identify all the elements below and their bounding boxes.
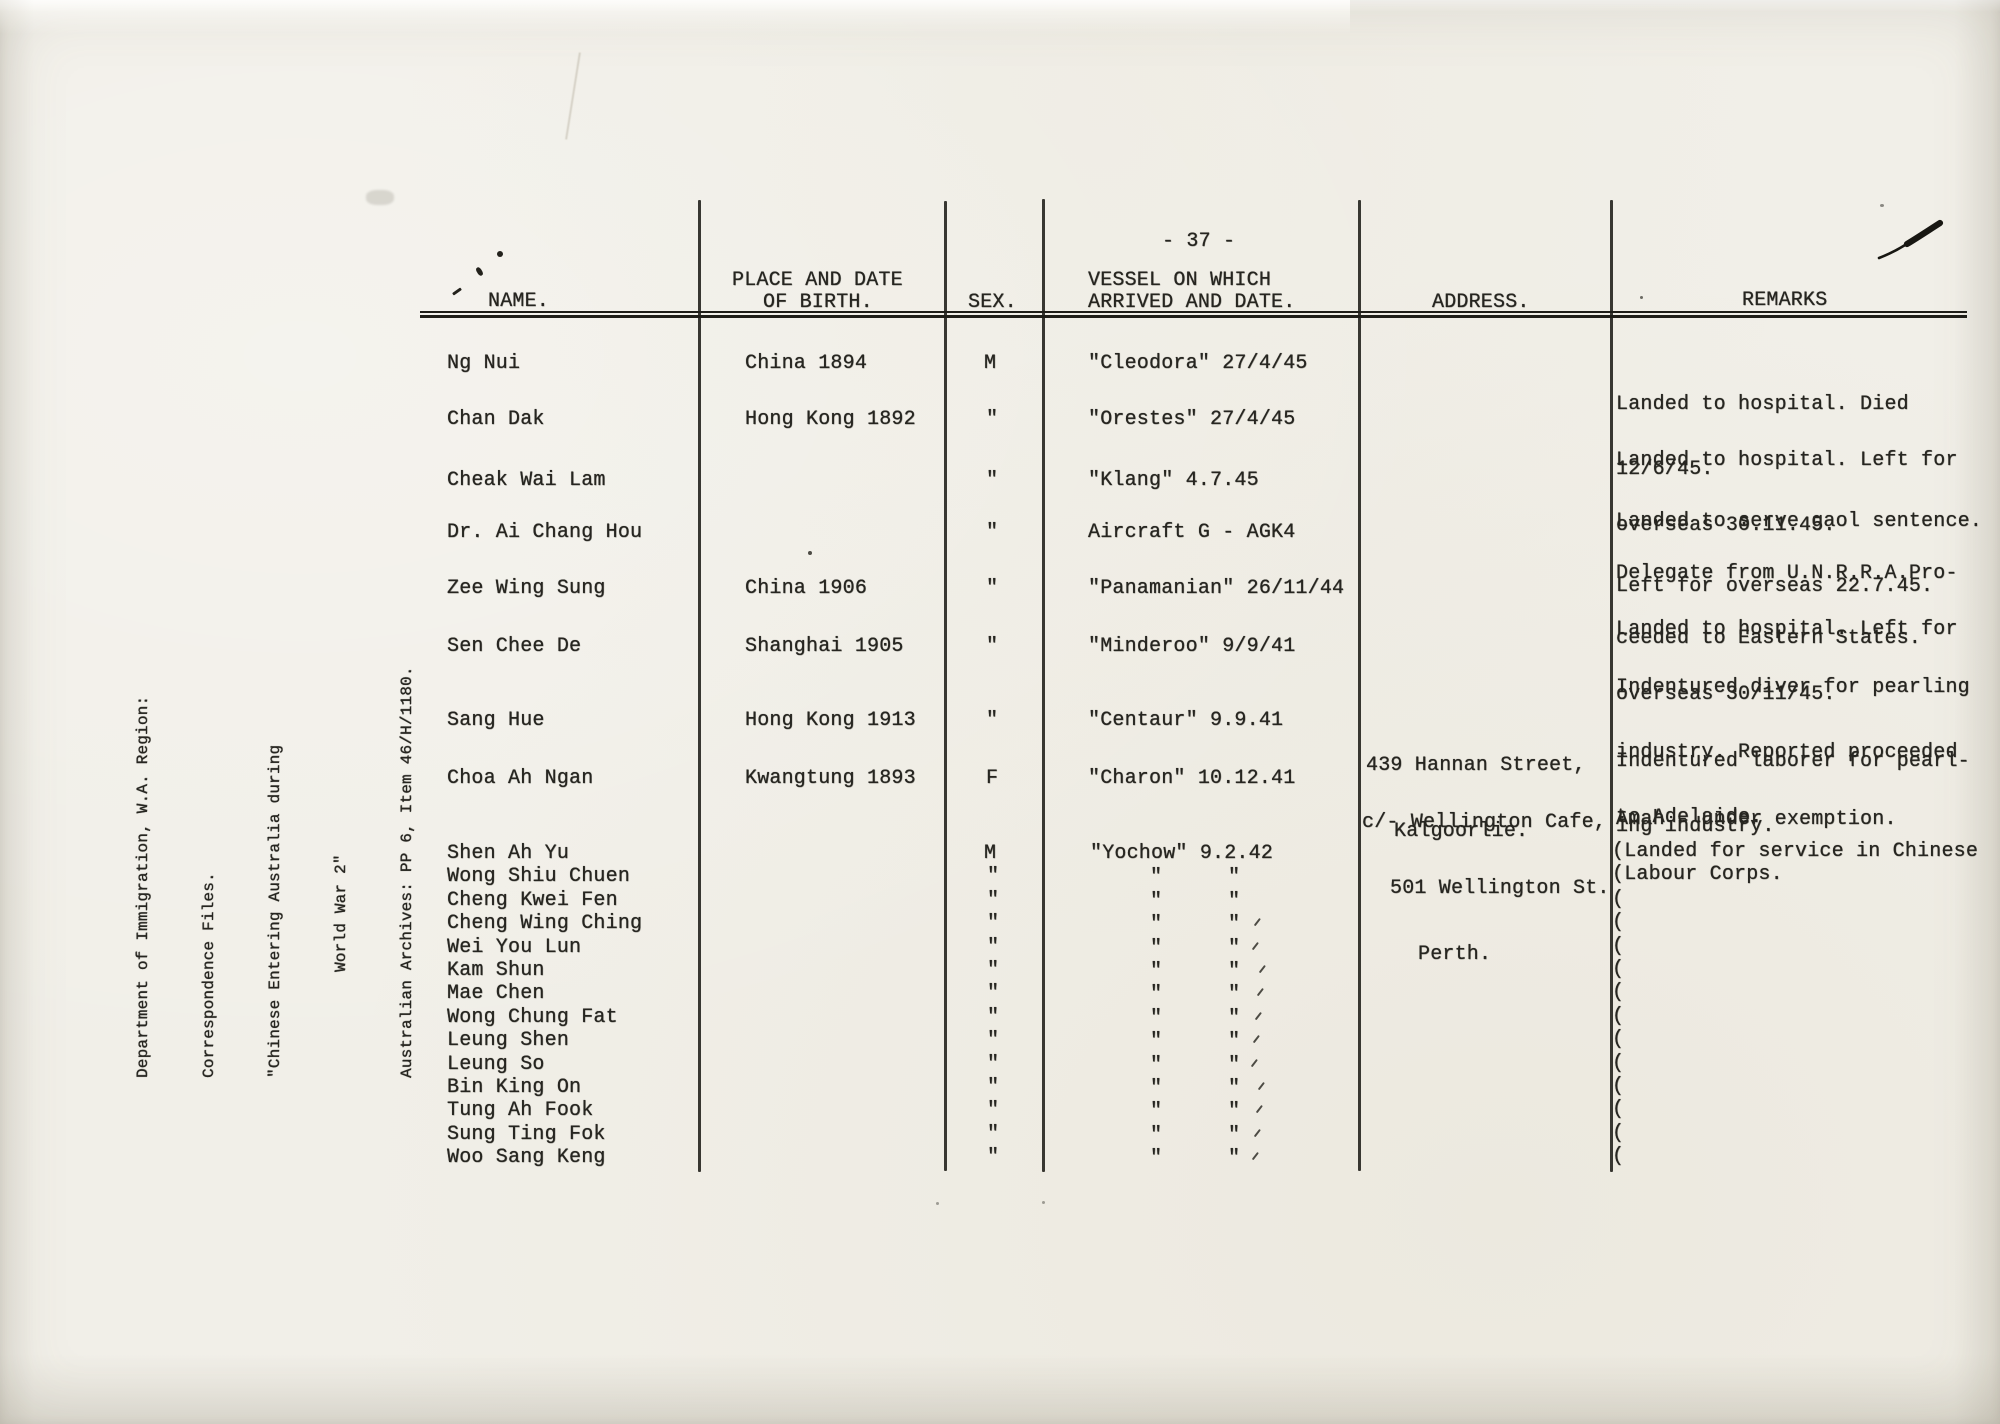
group-brace-mark: ( (1612, 1123, 1624, 1145)
row-sex: F (986, 768, 998, 790)
group-brace-mark: ( (1612, 959, 1624, 981)
address-line: 501 Wellington St. (1362, 878, 1610, 900)
group-name: Wei You Lun (447, 937, 581, 959)
scan-tick-mark (1252, 1152, 1259, 1161)
scan-tick-mark (1255, 1012, 1262, 1021)
row-vessel: "Orestes" 27/4/45 (1088, 409, 1295, 431)
group-sex-ditto: " (987, 1147, 999, 1169)
row-vessel: "Klang" 4.7.45 (1088, 470, 1259, 492)
group-sex-ditto: " (987, 983, 999, 1005)
scan-edge-left (0, 0, 34, 1424)
group-sex-ditto: " (987, 1054, 999, 1076)
group-sex-ditto: " (987, 960, 999, 982)
group-brace-mark: ( (1612, 1076, 1624, 1098)
citation-line: "Chinese Entering Australia during (264, 648, 286, 1078)
header-vessel-line2: ARRIVED AND DATE. (1088, 292, 1295, 314)
group-name: Shen Ah Yu (447, 843, 569, 865)
row-place: China 1906 (745, 578, 867, 600)
group-vessel-ditto: " (1150, 1101, 1162, 1123)
row-name: Zee Wing Sung (447, 578, 606, 600)
group-brace-mark: ( (1612, 936, 1624, 958)
group-name: Kam Shun (447, 960, 545, 982)
row-vessel: "Charon" 10.12.41 (1088, 768, 1295, 790)
row-vessel: Aircraft G - AGK4 (1088, 522, 1295, 544)
row-name: Sang Hue (447, 710, 545, 732)
group-name: Tung Ah Fook (447, 1100, 593, 1122)
address-line: Perth. (1362, 944, 1610, 966)
header-vessel-line1: VESSEL ON WHICH (1088, 270, 1271, 292)
page-number: - 37 - (1162, 231, 1235, 253)
scan-tick-mark (1252, 942, 1259, 951)
group-vessel-ditto: " (1228, 1125, 1240, 1147)
scan-tick-mark (1257, 988, 1264, 997)
group-name: Cheng Wing Ching (447, 913, 642, 935)
group-name: Cheng Kwei Fen (447, 890, 618, 912)
group-sex-ditto: " (987, 1100, 999, 1122)
header-remarks: REMARKS (1742, 290, 1827, 312)
scan-edge-bottom (0, 1354, 2000, 1424)
group-sex-ditto: " (987, 1030, 999, 1052)
group-name: Bin King On (447, 1077, 581, 1099)
group-name: Leung So (447, 1054, 545, 1076)
group-brace-mark: ( (1612, 982, 1624, 1004)
group-brace-mark: ( (1612, 1006, 1624, 1028)
group-vessel-ditto: " (1228, 984, 1240, 1006)
row-sex: " (986, 636, 998, 658)
group-vessel-ditto: " (1150, 1055, 1162, 1077)
header-name: NAME. (488, 291, 549, 313)
row-place: Kwangtung 1893 (745, 768, 916, 790)
group-brace-mark: ( (1612, 1053, 1624, 1075)
group-vessel-ditto: " (1150, 1125, 1162, 1147)
group-name: Wong Chung Fat (447, 1007, 618, 1029)
row-vessel: "Minderoo" 9/9/41 (1088, 636, 1295, 658)
row-sex: M (984, 353, 996, 375)
group-sex-ditto: " (987, 937, 999, 959)
group-vessel-ditto: " (1150, 1078, 1162, 1100)
group-vessel-ditto: " (1228, 891, 1240, 913)
row-vessel: "Cleodora" 27/4/45 (1088, 353, 1308, 375)
citation-line: Correspondence Files. (198, 648, 220, 1078)
group-vessel-ditto: " (1150, 914, 1162, 936)
scan-edge-top-highlight (0, 0, 2000, 12)
row-sex: " (986, 409, 998, 431)
remarks-line: Amah - under exemption. (1616, 809, 1897, 830)
group-sex-ditto: " (987, 1124, 999, 1146)
group-vessel-ditto: " (1228, 961, 1240, 983)
citation-line: World War 2" (330, 648, 352, 1078)
group-vessel-ditto: " (1228, 914, 1240, 936)
group-vessel-ditto: " (1228, 938, 1240, 960)
group-sex-ditto: " (987, 1077, 999, 1099)
group-remarks-line: (Labour Corps. (1612, 864, 1783, 886)
column-divider (1042, 199, 1045, 1172)
group-brace-mark: ( (1612, 1099, 1624, 1121)
group-vessel-ditto: " (1150, 938, 1162, 960)
scan-tick-mark (1253, 1035, 1260, 1044)
scan-tick-mark (1251, 1059, 1258, 1068)
group-vessel-ditto: " (1150, 961, 1162, 983)
group-remarks-line: (Landed for service in Chinese (1612, 841, 1978, 863)
citation-line: Department of Immigration, W.A. Region: (132, 648, 154, 1078)
ink-speck (1640, 296, 1643, 299)
scanned-document-page: Department of Immigration, W.A. Region: … (0, 0, 2000, 1424)
group-sex-value: M (984, 843, 996, 865)
group-vessel-ditto: " (1228, 1055, 1240, 1077)
row-name: Cheak Wai Lam (447, 470, 606, 492)
row-sex: " (986, 578, 998, 600)
group-name: Sung Ting Fok (447, 1124, 606, 1146)
row-name: Dr. Ai Chang Hou (447, 522, 642, 544)
ink-speck (808, 551, 812, 555)
ink-speck (1880, 204, 1884, 207)
ink-speck (475, 266, 484, 276)
row-place: Shanghai 1905 (745, 636, 904, 658)
scan-tick-mark (1258, 1082, 1265, 1091)
archive-citation: Department of Immigration, W.A. Region: … (88, 648, 462, 1078)
group-sex-ditto: " (987, 890, 999, 912)
address-line: c/- Wellington Cafe, (1362, 812, 1610, 834)
pen-stroke-mark (1876, 218, 1948, 262)
group-vessel-ditto: " (1228, 1078, 1240, 1100)
group-name: Woo Sang Keng (447, 1147, 606, 1169)
group-brace-mark: ( (1612, 889, 1624, 911)
row-sex: " (986, 470, 998, 492)
ink-speck (452, 287, 462, 295)
row-name: Sen Chee De (447, 636, 581, 658)
group-vessel-ditto: " (1150, 1148, 1162, 1170)
row-vessel: "Panamanian" 26/11/44 (1088, 578, 1344, 600)
scan-tick-mark (1256, 1105, 1263, 1114)
scan-tick-mark (1254, 918, 1261, 927)
ink-speck (497, 251, 503, 257)
header-place-line1: PLACE AND DATE (732, 270, 903, 292)
group-sex-ditto: " (987, 1007, 999, 1029)
remarks-line: Indentured diver for pearling (1616, 677, 1970, 698)
group-name: Mae Chen (447, 983, 545, 1005)
group-name: Leung Shen (447, 1030, 569, 1052)
group-vessel-ditto: " (1228, 1031, 1240, 1053)
group-vessel-ditto: " (1228, 867, 1240, 889)
group-vessel-ditto: " (1150, 1031, 1162, 1053)
group-vessel-ditto: " (1150, 1008, 1162, 1030)
group-vessel: "Yochow" 9.2.42 (1090, 843, 1273, 865)
group-vessel-ditto: " (1150, 984, 1162, 1006)
ink-speck (936, 1202, 939, 1205)
row-sex: " (986, 522, 998, 544)
row-place: China 1894 (745, 353, 867, 375)
header-sex: SEX. (968, 292, 1017, 314)
group-vessel-ditto: " (1228, 1008, 1240, 1030)
row-name: Choa Ah Ngan (447, 768, 593, 790)
citation-line: Australian Archives: PP 6, Item 46/H/118… (396, 648, 418, 1078)
paper-crease (565, 52, 581, 139)
row-sex: " (986, 710, 998, 732)
ink-speck (1042, 1201, 1045, 1204)
group-brace-mark: ( (1612, 1029, 1624, 1051)
ink-smudge (366, 190, 394, 205)
row-place: Hong Kong 1892 (745, 409, 916, 431)
header-place-line2: OF BIRTH. (763, 292, 873, 314)
group-vessel-ditto: " (1150, 891, 1162, 913)
row-name: Ng Nui (447, 353, 520, 375)
group-sex-ditto: " (987, 913, 999, 935)
group-vessel-ditto: " (1150, 867, 1162, 889)
row-address: c/- Wellington Cafe, 501 Wellington St. … (1362, 768, 1610, 1010)
column-divider (1358, 200, 1361, 1171)
scan-tick-mark (1259, 965, 1266, 974)
group-brace-mark: ( (1612, 912, 1624, 934)
row-place: Hong Kong 1913 (745, 710, 916, 732)
row-vessel: "Centaur" 9.9.41 (1088, 710, 1283, 732)
column-divider (944, 201, 947, 1171)
scan-tick-mark (1254, 1129, 1261, 1138)
group-brace-mark: ( (1612, 1146, 1624, 1168)
group-sex-ditto: " (987, 866, 999, 888)
group-name: Wong Shiu Chuen (447, 866, 630, 888)
row-name: Chan Dak (447, 409, 545, 431)
group-vessel-ditto: " (1228, 1148, 1240, 1170)
header-address: ADDRESS. (1432, 292, 1530, 314)
column-divider (698, 200, 701, 1172)
group-vessel-ditto: " (1228, 1101, 1240, 1123)
